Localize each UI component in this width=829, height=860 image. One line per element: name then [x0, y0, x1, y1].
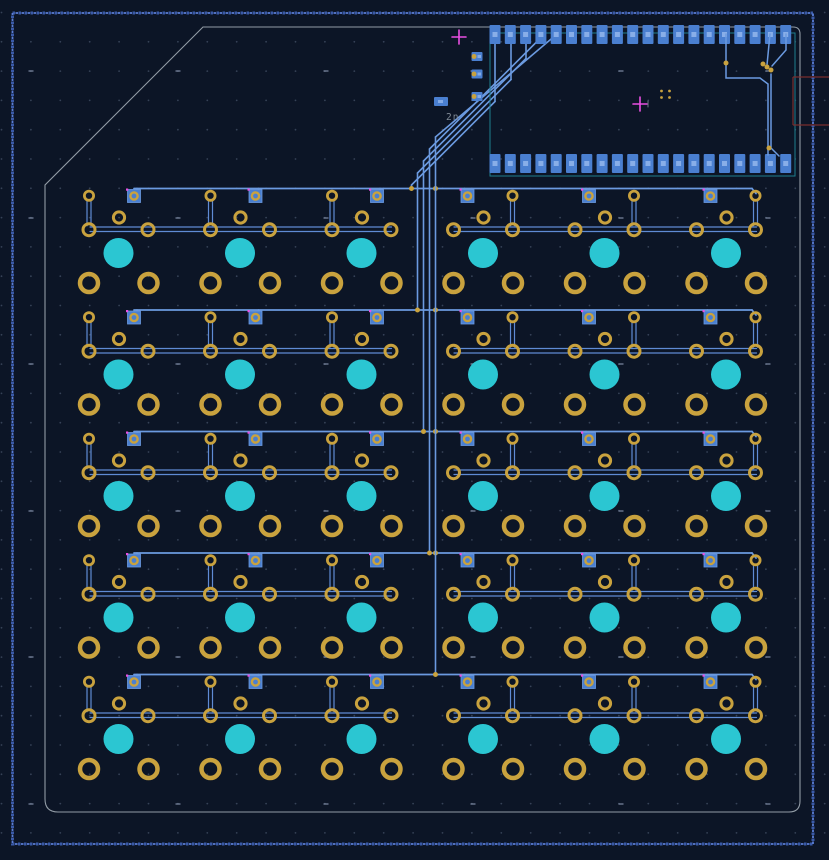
center-pin-pad: [599, 576, 610, 587]
switch-center-hole: [711, 481, 741, 511]
switch-center-hole: [590, 360, 620, 390]
switch-pin-pad: [206, 313, 215, 322]
switch-center-hole: [225, 360, 255, 390]
key-switch-footprint[interactable]: [688, 675, 766, 779]
mount-hole-pad: [626, 760, 644, 778]
switch-pin-pad: [84, 434, 93, 443]
via: [769, 68, 774, 73]
mount-hole-pad: [445, 760, 463, 778]
mount-hole-pad: [383, 517, 401, 535]
via: [761, 62, 766, 67]
switch-center-hole: [347, 724, 377, 754]
diode-pad: [569, 588, 581, 600]
via: [472, 72, 477, 77]
mount-hole-pad: [383, 760, 401, 778]
diode-pad: [264, 345, 276, 357]
switch-pin-pad: [206, 191, 215, 200]
diode-pad: [385, 710, 397, 722]
switch-pin-pad: [751, 191, 760, 200]
center-pin-pad: [235, 698, 246, 709]
switch-pin-pad: [327, 313, 336, 322]
mount-hole-pad: [140, 639, 158, 657]
via: [409, 186, 414, 191]
diode-pad: [326, 467, 338, 479]
diode-pad: [83, 467, 95, 479]
key-switch-footprint[interactable]: [566, 553, 644, 657]
diode-pad: [691, 224, 703, 236]
switch-pin-pad: [629, 556, 638, 565]
diode-pad: [569, 467, 581, 479]
switch-center-hole: [225, 603, 255, 633]
diode-pad: [326, 224, 338, 236]
key-switch-footprint[interactable]: [323, 432, 401, 536]
mount-hole-pad: [80, 760, 98, 778]
mount-hole-pad: [323, 274, 341, 292]
diode-pad: [691, 588, 703, 600]
key-switch-footprint[interactable]: [566, 189, 644, 293]
diode-pad: [448, 467, 460, 479]
mount-hole-pad: [261, 639, 279, 657]
switch-pin-pad: [629, 434, 638, 443]
via: [767, 146, 772, 151]
switch-pin-pad: [508, 313, 517, 322]
diode-pad: [448, 710, 460, 722]
key-switch-footprint[interactable]: [445, 553, 523, 657]
switch-pin-pad: [84, 191, 93, 200]
switch-center-hole: [225, 238, 255, 268]
diode-pad: [507, 467, 519, 479]
diode-pad: [142, 224, 154, 236]
diode-pad: [83, 345, 95, 357]
switch-center-hole: [468, 481, 498, 511]
center-pin-pad: [478, 333, 489, 344]
center-pin-pad: [113, 576, 124, 587]
mount-hole-pad: [688, 274, 706, 292]
mount-hole-pad: [140, 396, 158, 414]
center-pin-pad: [721, 698, 732, 709]
key-switch-footprint[interactable]: [323, 553, 401, 657]
mount-hole-pad: [504, 274, 522, 292]
mount-hole-pad: [445, 274, 463, 292]
center-pin-pad: [478, 212, 489, 223]
diode-pad: [205, 588, 217, 600]
center-pin-pad: [235, 455, 246, 466]
mount-hole-pad: [445, 517, 463, 535]
switch-pin-pad: [508, 556, 517, 565]
center-pin-pad: [356, 455, 367, 466]
switch-center-hole: [711, 238, 741, 268]
mount-hole-pad: [626, 274, 644, 292]
key-switch-grid: [80, 189, 765, 779]
mount-hole-pad: [747, 274, 765, 292]
diode-pad: [142, 345, 154, 357]
via: [421, 429, 426, 434]
switch-pin-pad: [327, 677, 336, 686]
diode-pad: [750, 345, 762, 357]
diode-pad: [628, 467, 640, 479]
diode-pad: [326, 710, 338, 722]
key-switch-footprint[interactable]: [688, 432, 766, 536]
key-switch-footprint[interactable]: [445, 310, 523, 414]
switch-center-hole: [225, 724, 255, 754]
diode-pad: [205, 345, 217, 357]
switch-pin-pad: [84, 677, 93, 686]
mount-hole-pad: [688, 639, 706, 657]
key-switch-footprint[interactable]: [688, 310, 766, 414]
switch-pin-pad: [327, 191, 336, 200]
mcu-module-footprint[interactable]: 2n: [434, 25, 829, 176]
mount-hole-pad: [323, 760, 341, 778]
switch-center-hole: [711, 360, 741, 390]
mount-hole-pad: [261, 396, 279, 414]
switch-pin-pad: [629, 677, 638, 686]
diode-pad: [326, 588, 338, 600]
switch-pin-pad: [508, 191, 517, 200]
mount-hole-pad: [747, 760, 765, 778]
usb-fab-outline: [793, 77, 829, 125]
diode-pad: [569, 710, 581, 722]
switch-pin-pad: [327, 556, 336, 565]
key-switch-footprint[interactable]: [323, 189, 401, 293]
mount-hole-pad: [261, 274, 279, 292]
mount-hole-pad: [383, 639, 401, 657]
center-pin-pad: [113, 455, 124, 466]
switch-center-hole: [347, 603, 377, 633]
mount-hole-pad: [566, 760, 584, 778]
board-outline: [45, 27, 800, 812]
mount-hole-pad: [747, 517, 765, 535]
via: [433, 672, 438, 677]
mount-hole-pad: [323, 639, 341, 657]
mount-hole-pad: [261, 517, 279, 535]
mount-hole-pad: [323, 517, 341, 535]
module-reference-text: 2n: [446, 112, 459, 123]
key-switch-footprint[interactable]: [80, 675, 158, 779]
diode-pad: [448, 588, 460, 600]
center-pin-pad: [721, 576, 732, 587]
switch-center-hole: [590, 481, 620, 511]
mount-hole-pad: [747, 396, 765, 414]
switch-center-hole: [347, 238, 377, 268]
diode-pad: [205, 467, 217, 479]
switch-center-hole: [711, 603, 741, 633]
diode-pad: [628, 710, 640, 722]
via: [472, 94, 477, 99]
center-pin-pad: [356, 333, 367, 344]
switch-center-hole: [104, 481, 134, 511]
mount-hole-pad: [445, 396, 463, 414]
switch-center-hole: [225, 481, 255, 511]
switch-center-hole: [468, 724, 498, 754]
mount-hole-pad: [688, 517, 706, 535]
switch-pin-pad: [629, 191, 638, 200]
center-pin-pad: [599, 212, 610, 223]
switch-pin-pad: [751, 677, 760, 686]
key-switch-footprint[interactable]: [202, 432, 280, 536]
key-switch-footprint[interactable]: [566, 675, 644, 779]
mount-hole-pad: [80, 639, 98, 657]
diode-pad: [750, 467, 762, 479]
mount-hole-pad: [504, 760, 522, 778]
diode-pad: [507, 345, 519, 357]
switch-center-hole: [104, 603, 134, 633]
center-pin-pad: [478, 698, 489, 709]
diode-pad: [326, 345, 338, 357]
diode-pad: [628, 345, 640, 357]
via: [724, 61, 729, 66]
switch-center-hole: [468, 360, 498, 390]
diode-pad: [448, 345, 460, 357]
mount-hole-pad: [566, 639, 584, 657]
switch-pin-pad: [84, 313, 93, 322]
diode-pad: [205, 710, 217, 722]
diode-pad: [628, 224, 640, 236]
mount-hole-pad: [202, 760, 220, 778]
switch-pin-pad: [508, 434, 517, 443]
mount-hole-pad: [504, 639, 522, 657]
switch-pin-pad: [508, 677, 517, 686]
via: [765, 65, 770, 70]
center-pin-pad: [113, 698, 124, 709]
center-pin-pad: [721, 333, 732, 344]
switch-pin-pad: [206, 677, 215, 686]
center-pin-pad: [599, 455, 610, 466]
center-pin-pad: [478, 576, 489, 587]
switch-center-hole: [468, 603, 498, 633]
footprint-anchor-marker: [633, 97, 647, 111]
switch-center-hole: [347, 481, 377, 511]
diode-pad: [750, 588, 762, 600]
switch-center-hole: [711, 724, 741, 754]
diode-pad: [385, 345, 397, 357]
mount-hole-pad: [202, 639, 220, 657]
switch-pin-pad: [206, 434, 215, 443]
key-switch-footprint[interactable]: [445, 189, 523, 293]
center-pin-pad: [478, 455, 489, 466]
switch-center-hole: [347, 360, 377, 390]
mount-hole-pad: [688, 396, 706, 414]
mount-hole-pad: [504, 396, 522, 414]
center-pin-pad: [235, 333, 246, 344]
center-pin-pad: [599, 698, 610, 709]
center-pin-pad: [721, 455, 732, 466]
diode-pad: [448, 224, 460, 236]
via: [472, 54, 477, 59]
diode-pad: [142, 467, 154, 479]
diode-pad: [628, 588, 640, 600]
diode-pad: [385, 467, 397, 479]
diode-pad: [691, 710, 703, 722]
mount-hole-pad: [566, 274, 584, 292]
mount-hole-pad: [80, 517, 98, 535]
diode-pad: [264, 588, 276, 600]
diode-pad: [385, 588, 397, 600]
mount-hole-pad: [202, 274, 220, 292]
key-switch-footprint[interactable]: [202, 553, 280, 657]
key-switch-footprint[interactable]: [688, 553, 766, 657]
mount-hole-pad: [626, 639, 644, 657]
diode-pad: [83, 224, 95, 236]
diode-pad: [507, 710, 519, 722]
mount-hole-pad: [626, 517, 644, 535]
key-switch-footprint[interactable]: [566, 310, 644, 414]
mount-hole-pad: [140, 760, 158, 778]
mount-hole-pad: [323, 396, 341, 414]
diode-pad: [750, 710, 762, 722]
key-switch-footprint[interactable]: [202, 675, 280, 779]
mount-hole-pad: [383, 396, 401, 414]
key-switch-footprint[interactable]: [80, 432, 158, 536]
diode-pad: [507, 224, 519, 236]
key-switch-footprint[interactable]: [445, 432, 523, 536]
mount-hole-pad: [566, 517, 584, 535]
via: [415, 308, 420, 313]
key-switch-footprint[interactable]: [566, 432, 644, 536]
switch-pin-pad: [751, 434, 760, 443]
mount-hole-pad: [202, 517, 220, 535]
switch-pin-pad: [84, 556, 93, 565]
center-pin-pad: [356, 212, 367, 223]
mount-hole-pad: [261, 760, 279, 778]
switch-center-hole: [104, 724, 134, 754]
switch-center-hole: [590, 724, 620, 754]
mount-hole-pad: [504, 517, 522, 535]
diode-pad: [569, 345, 581, 357]
mount-hole-pad: [140, 517, 158, 535]
center-pin-pad: [721, 212, 732, 223]
center-pin-pad: [356, 576, 367, 587]
key-switch-footprint[interactable]: [445, 675, 523, 779]
mount-hole-pad: [383, 274, 401, 292]
switch-pin-pad: [751, 313, 760, 322]
center-pin-pad: [235, 576, 246, 587]
switch-pin-pad: [206, 556, 215, 565]
switch-pin-pad: [629, 313, 638, 322]
diode-pad: [385, 224, 397, 236]
via: [427, 551, 432, 556]
diode-pad: [691, 467, 703, 479]
switch-center-hole: [468, 238, 498, 268]
mount-hole-pad: [626, 396, 644, 414]
mount-hole-pad: [566, 396, 584, 414]
diode-pad: [691, 345, 703, 357]
key-switch-footprint[interactable]: [80, 310, 158, 414]
key-switch-footprint[interactable]: [202, 189, 280, 293]
mount-hole-pad: [688, 760, 706, 778]
diode-pad: [264, 224, 276, 236]
diode-pad: [264, 467, 276, 479]
diode-pad: [569, 224, 581, 236]
mount-hole-pad: [202, 396, 220, 414]
switch-pin-pad: [751, 556, 760, 565]
diode-pad: [205, 224, 217, 236]
key-switch-footprint[interactable]: [202, 310, 280, 414]
mount-hole-pad: [445, 639, 463, 657]
switch-center-hole: [590, 238, 620, 268]
diode-pad: [507, 588, 519, 600]
key-switch-footprint[interactable]: [688, 189, 766, 293]
center-pin-pad: [599, 333, 610, 344]
switch-center-hole: [104, 360, 134, 390]
mount-hole-pad: [747, 639, 765, 657]
diode-pad: [750, 224, 762, 236]
key-switch-footprint[interactable]: [323, 675, 401, 779]
center-pin-pad: [356, 698, 367, 709]
pcb-canvas[interactable]: 2n: [0, 0, 829, 860]
switch-pin-pad: [327, 434, 336, 443]
switch-center-hole: [104, 238, 134, 268]
trace-bundle: [409, 34, 557, 677]
mount-hole-pad: [80, 396, 98, 414]
key-switch-footprint[interactable]: [323, 310, 401, 414]
switch-center-hole: [590, 603, 620, 633]
footprint-anchor-marker: [452, 30, 466, 44]
